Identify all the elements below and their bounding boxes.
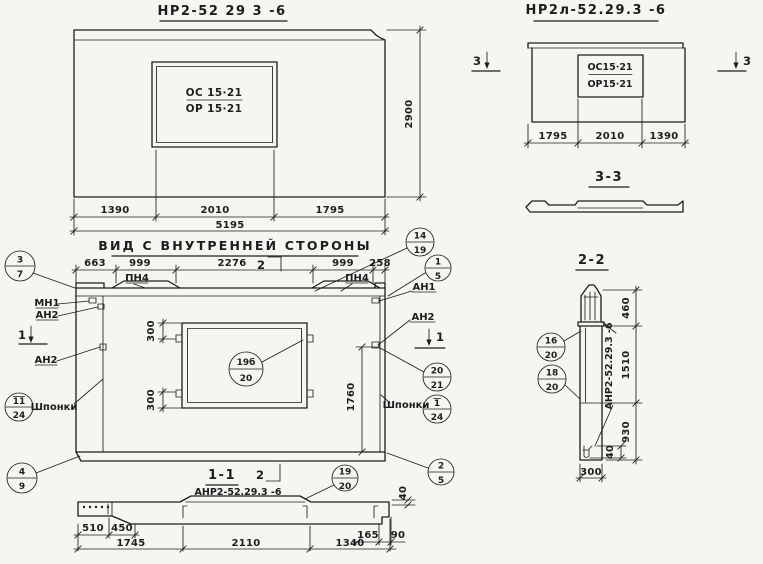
- dim-450: 450: [111, 523, 133, 534]
- svg-text:4: 4: [19, 468, 25, 478]
- dim-1390: 1390: [100, 205, 129, 216]
- dim-1390: 1390: [649, 131, 678, 142]
- svg-text:Шпонки: Шпонки: [383, 400, 430, 411]
- front-view-title: НР2-52 29 3 -6: [157, 4, 286, 19]
- svg-text:16: 16: [545, 337, 558, 347]
- svg-text:АН1: АН1: [412, 282, 435, 293]
- svg-text:1760: 1760: [346, 382, 357, 411]
- cut-3-label: 3: [473, 54, 481, 68]
- dim-2010: 2010: [200, 205, 229, 216]
- svg-text:11: 11: [13, 397, 26, 407]
- balloon-11ov-24: 11 24: [5, 393, 33, 421]
- svg-text:19: 19: [339, 468, 352, 478]
- drawing-sheet: НР2-52 29 3 -6 ОС 15·21 ОР 15·21 1390 20…: [0, 0, 763, 564]
- svg-text:АН2: АН2: [35, 310, 58, 321]
- opening-mark-top: ОС 15·21: [186, 87, 243, 99]
- svg-text:3: 3: [17, 256, 23, 266]
- svg-text:40: 40: [605, 445, 616, 460]
- svg-text:5: 5: [438, 476, 444, 486]
- svg-text:24: 24: [13, 411, 26, 421]
- cut-2-label: 2: [257, 258, 265, 272]
- svg-text:20: 20: [431, 367, 444, 377]
- svg-text:АН2: АН2: [411, 312, 434, 323]
- svg-text:20: 20: [545, 351, 558, 361]
- dim-90: 90: [391, 530, 406, 541]
- svg-text:18: 18: [546, 369, 559, 379]
- svg-text:19б: 19б: [237, 357, 256, 368]
- dim-1795: 1795: [315, 205, 344, 216]
- dim-2110: 2110: [231, 538, 260, 549]
- dim-1795: 1795: [538, 131, 567, 142]
- cut-2-label: 2: [256, 468, 264, 482]
- svg-text:1: 1: [435, 258, 441, 268]
- dim-2900: 2900: [404, 99, 415, 128]
- dim-999b: 999: [332, 258, 354, 269]
- section-mark-label: АНР2-52.29.3 -6: [604, 322, 615, 409]
- cut-3-label: 3: [743, 54, 751, 68]
- section-2-2-title: 2-2: [578, 253, 606, 268]
- dim-663: 663: [84, 258, 106, 269]
- svg-text:1: 1: [436, 330, 444, 344]
- svg-text:24: 24: [431, 413, 444, 423]
- svg-text:20: 20: [240, 374, 253, 384]
- dim-2010: 2010: [595, 131, 624, 142]
- svg-text:1: 1: [18, 328, 26, 342]
- opening-mark-bottom: ОР 15·21: [186, 103, 243, 115]
- svg-text:1: 1: [434, 399, 440, 409]
- svg-text:АН2: АН2: [34, 355, 57, 366]
- dim-510: 510: [82, 523, 104, 534]
- svg-text:ПН4: ПН4: [125, 273, 149, 284]
- svg-text:ПН4: ПН4: [345, 273, 369, 284]
- dim-930: 930: [621, 421, 632, 443]
- inner-view-title: ВИД С ВНУТРЕННЕЙ СТОРОНЫ: [98, 238, 371, 253]
- dim-1745: 1745: [116, 538, 145, 549]
- svg-text:300: 300: [146, 320, 157, 342]
- svg-text:19: 19: [414, 246, 427, 256]
- dim-2276: 2276: [217, 258, 246, 269]
- svg-text:300: 300: [580, 467, 602, 478]
- section-1-1-title: 1-1: [208, 468, 236, 483]
- panel-drawing: НР2-52 29 3 -6 ОС 15·21 ОР 15·21 1390 20…: [0, 0, 763, 564]
- dim-999: 999: [129, 258, 151, 269]
- svg-text:9: 9: [19, 482, 25, 492]
- mirror-view-title: НР2л-52.29.3 -6: [526, 3, 667, 18]
- svg-text:2: 2: [438, 462, 444, 472]
- dim-258: 258: [369, 258, 391, 269]
- svg-text:Шпонки: Шпонки: [31, 402, 78, 413]
- svg-text:МН1: МН1: [34, 298, 59, 309]
- dim-460: 460: [621, 297, 632, 319]
- svg-text:40: 40: [398, 486, 409, 501]
- section-3-3-title: 3-3: [595, 170, 623, 185]
- svg-text:21: 21: [431, 381, 444, 391]
- svg-text:14: 14: [414, 232, 427, 242]
- svg-text:20: 20: [546, 383, 559, 393]
- dim-1510: 1510: [621, 350, 632, 379]
- paper: [0, 0, 763, 564]
- opening-mark-bottom: ОР15·21: [587, 79, 632, 90]
- svg-text:7: 7: [17, 270, 23, 280]
- svg-text:20: 20: [339, 482, 352, 492]
- dim-5195: 5195: [215, 220, 244, 231]
- opening-mark-top: ОС15·21: [587, 62, 632, 73]
- balloon-1ov-24: 1 24: [423, 395, 451, 423]
- svg-text:300: 300: [146, 389, 157, 411]
- svg-text:5: 5: [435, 272, 441, 282]
- dim-1340: 1340: [335, 538, 364, 549]
